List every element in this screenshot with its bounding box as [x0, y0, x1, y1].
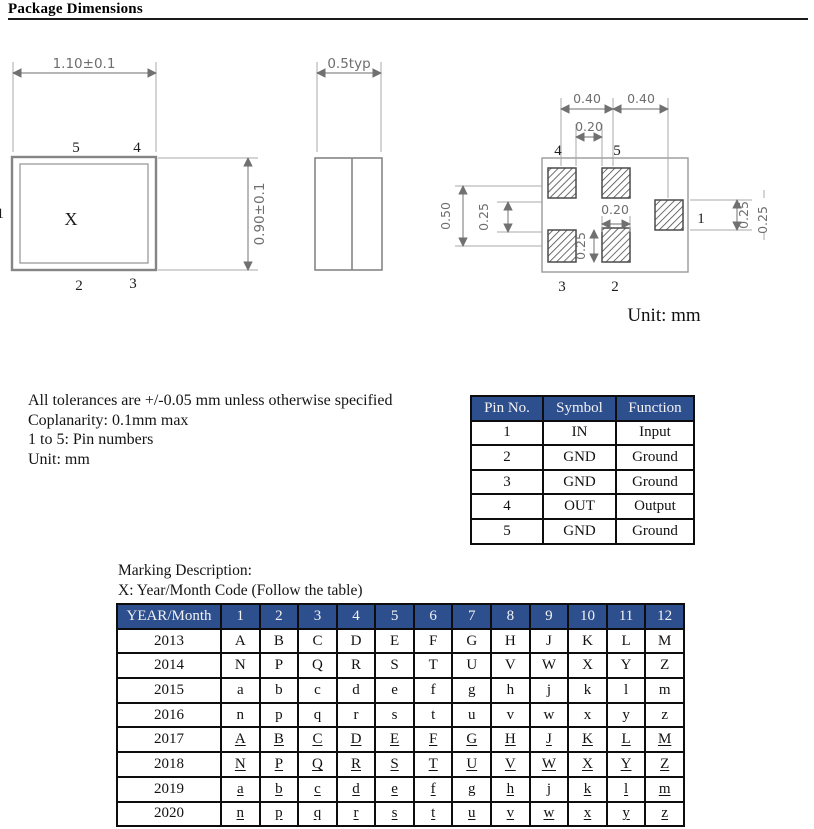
table-cell: R: [337, 752, 376, 777]
table-cell: B: [260, 727, 299, 752]
table-cell: x: [568, 703, 607, 728]
year-month-table: YEAR/Month123456789101112 2013ABCDEFGHJK…: [116, 603, 685, 827]
table-cell: t: [414, 703, 453, 728]
pin1-label: 1: [0, 206, 4, 222]
table-cell: A: [221, 727, 260, 752]
table-row: 5GNDGround: [471, 519, 694, 544]
table-cell: r: [337, 703, 376, 728]
table-cell: D: [337, 629, 376, 654]
table-cell: 2014: [117, 653, 221, 678]
pad-4: [548, 168, 576, 198]
table-cell: Z: [645, 653, 684, 678]
table-cell: V: [491, 653, 530, 678]
pad-1: [655, 200, 683, 230]
land-pin1-label: 1: [697, 211, 705, 227]
table-cell: y: [607, 802, 646, 827]
table-cell: 4: [471, 494, 543, 519]
table-cell: K: [568, 727, 607, 752]
table-cell: G: [452, 727, 491, 752]
pin-function-table: Pin No.SymbolFunction 1INInput2GNDGround…: [470, 395, 695, 545]
table-cell: Y: [607, 653, 646, 678]
land-pin4-label: 4: [554, 143, 562, 159]
year-table-header: YEAR/Month123456789101112: [117, 604, 684, 629]
table-cell: T: [414, 653, 453, 678]
table-cell: k: [568, 678, 607, 703]
column-header: YEAR/Month: [117, 604, 221, 629]
pad-3: [548, 230, 576, 262]
table-cell: K: [568, 629, 607, 654]
table-cell: Q: [298, 752, 337, 777]
table-cell: U: [452, 752, 491, 777]
pad-2: [602, 228, 630, 262]
note-line: All tolerances are +/-0.05 mm unless oth…: [28, 391, 392, 411]
table-cell: r: [337, 802, 376, 827]
table-cell: D: [337, 727, 376, 752]
table-cell: 3: [471, 470, 543, 495]
pin5-label: 5: [72, 140, 80, 156]
table-cell: 2013: [117, 629, 221, 654]
pin4-label: 4: [133, 140, 141, 156]
table-cell: s: [375, 802, 414, 827]
pin3-label: 3: [129, 276, 137, 292]
table-cell: u: [452, 802, 491, 827]
table-cell: G: [452, 629, 491, 654]
table-cell: 2018: [117, 752, 221, 777]
table-row: 2018NPQRSTUVWXYZ: [117, 752, 684, 777]
pin-table-body: 1INInput2GNDGround3GNDGround4OUTOutput5G…: [471, 421, 694, 544]
top-view-height-dim: 0.90±0.1: [252, 183, 268, 246]
table-cell: j: [530, 777, 569, 802]
table-row: 4OUTOutput: [471, 494, 694, 519]
column-header: 10: [568, 604, 607, 629]
table-cell: v: [491, 802, 530, 827]
table-cell: W: [530, 752, 569, 777]
column-header: 7: [452, 604, 491, 629]
table-cell: d: [337, 777, 376, 802]
table-cell: j: [530, 678, 569, 703]
table-cell: c: [298, 777, 337, 802]
table-cell: Y: [607, 752, 646, 777]
table-cell: Ground: [616, 445, 694, 470]
page-title: Package Dimensions: [8, 1, 143, 18]
land-pin5-label: 5: [613, 143, 621, 159]
title-underline: [8, 18, 808, 20]
table-row: 2019abcdefghjklm: [117, 777, 684, 802]
table-row: 2GNDGround: [471, 445, 694, 470]
table-cell: GND: [543, 470, 616, 495]
table-cell: M: [645, 629, 684, 654]
table-cell: a: [221, 777, 260, 802]
table-cell: F: [414, 727, 453, 752]
table-row: 2020npqrstuvwxyz: [117, 802, 684, 827]
side-view-thickness-dim: 0.5typ: [327, 56, 370, 72]
table-cell: E: [375, 727, 414, 752]
note-line: Unit: mm: [28, 450, 392, 470]
table-cell: l: [607, 678, 646, 703]
table-cell: Output: [616, 494, 694, 519]
table-row: 2016npqrstuvwxyz: [117, 703, 684, 728]
column-header: 2: [260, 604, 299, 629]
table-cell: k: [568, 777, 607, 802]
table-cell: S: [375, 752, 414, 777]
pin-table-header: Pin No.SymbolFunction: [471, 396, 694, 421]
table-cell: 5: [471, 519, 543, 544]
table-cell: Z: [645, 752, 684, 777]
note-line: Coplanarity: 0.1mm max: [28, 411, 392, 431]
table-cell: e: [375, 777, 414, 802]
dim-025-mid: 0.25: [573, 232, 588, 260]
table-cell: z: [645, 703, 684, 728]
table-cell: n: [221, 802, 260, 827]
table-cell: L: [607, 629, 646, 654]
table-cell: L: [607, 727, 646, 752]
table-cell: Q: [298, 653, 337, 678]
table-cell: 2: [471, 445, 543, 470]
column-header: 8: [491, 604, 530, 629]
table-cell: y: [607, 703, 646, 728]
table-cell: f: [414, 777, 453, 802]
table-cell: b: [260, 777, 299, 802]
note-line: 1 to 5: Pin numbers: [28, 430, 392, 450]
column-header: 1: [221, 604, 260, 629]
marking-line: X: Year/Month Code (Follow the table): [118, 581, 363, 601]
table-row: 3GNDGround: [471, 470, 694, 495]
package-drawings: 1.10±0.1 X 5 4 2 3 1 0.90±0.1 0.5typ: [0, 40, 814, 340]
table-cell: IN: [543, 421, 616, 446]
table-cell: F: [414, 629, 453, 654]
tolerance-notes: All tolerances are +/-0.05 mm unless oth…: [28, 391, 392, 469]
table-cell: GND: [543, 519, 616, 544]
table-cell: l: [607, 777, 646, 802]
table-cell: z: [645, 802, 684, 827]
table-cell: a: [221, 678, 260, 703]
table-cell: w: [530, 703, 569, 728]
column-header: 4: [337, 604, 376, 629]
table-cell: M: [645, 727, 684, 752]
table-cell: p: [260, 802, 299, 827]
table-row: 2014NPQRSTUVWXYZ: [117, 653, 684, 678]
table-cell: C: [298, 629, 337, 654]
column-header: Pin No.: [471, 396, 543, 421]
table-cell: u: [452, 703, 491, 728]
table-cell: J: [530, 629, 569, 654]
table-cell: E: [375, 629, 414, 654]
table-row: 2017ABCDEFGHJKLM: [117, 727, 684, 752]
pin2-label: 2: [75, 278, 83, 294]
table-row: 1INInput: [471, 421, 694, 446]
datasheet-page: Package Dimensions 1.10±0.1 X 5 4 2 3: [0, 0, 814, 829]
table-cell: c: [298, 678, 337, 703]
table-cell: A: [221, 629, 260, 654]
table-cell: X: [568, 752, 607, 777]
dim-025-left: 0.25: [476, 203, 491, 231]
table-cell: x: [568, 802, 607, 827]
marking-x: X: [65, 209, 78, 229]
table-cell: 1: [471, 421, 543, 446]
column-header: 5: [375, 604, 414, 629]
pad-5: [602, 168, 630, 198]
year-table-body: 2013ABCDEFGHJKLM2014NPQRSTUVWXYZ2015abcd…: [117, 629, 684, 827]
dim-020-top: 0.20: [575, 119, 603, 134]
table-cell: n: [221, 703, 260, 728]
column-header: 12: [645, 604, 684, 629]
table-cell: Input: [616, 421, 694, 446]
column-header: 9: [530, 604, 569, 629]
table-cell: H: [491, 629, 530, 654]
column-header: 6: [414, 604, 453, 629]
dim-050-left: 0.50: [438, 202, 453, 230]
table-cell: p: [260, 703, 299, 728]
dim-040-right: 0.40: [627, 91, 655, 106]
table-cell: g: [452, 777, 491, 802]
unit-label: Unit: mm: [627, 305, 701, 326]
table-cell: t: [414, 802, 453, 827]
package-inner-outline: [20, 164, 148, 263]
table-cell: q: [298, 802, 337, 827]
table-cell: N: [221, 653, 260, 678]
table-cell: Ground: [616, 519, 694, 544]
dim-020-mid: 0.20: [601, 202, 629, 217]
dim-025-right-outer: 0.25: [755, 206, 770, 234]
side-view-outline: [315, 158, 382, 270]
table-cell: g: [452, 678, 491, 703]
column-header: Symbol: [543, 396, 616, 421]
table-cell: R: [337, 653, 376, 678]
table-cell: s: [375, 703, 414, 728]
table-row: 2015abcdefghjklm: [117, 678, 684, 703]
column-header: 3: [298, 604, 337, 629]
table-cell: w: [530, 802, 569, 827]
table-cell: 2020: [117, 802, 221, 827]
table-cell: U: [452, 653, 491, 678]
table-cell: T: [414, 752, 453, 777]
marking-line: Marking Description:: [118, 561, 363, 581]
table-cell: B: [260, 629, 299, 654]
table-cell: H: [491, 727, 530, 752]
table-cell: W: [530, 653, 569, 678]
table-cell: 2015: [117, 678, 221, 703]
table-cell: q: [298, 703, 337, 728]
table-cell: N: [221, 752, 260, 777]
table-cell: Ground: [616, 470, 694, 495]
table-cell: h: [491, 678, 530, 703]
table-row: 2013ABCDEFGHJKLM: [117, 629, 684, 654]
dim-025-right-inner: 0.25: [736, 201, 751, 229]
table-cell: 2016: [117, 703, 221, 728]
table-cell: C: [298, 727, 337, 752]
table-cell: h: [491, 777, 530, 802]
dim-040-left: 0.40: [573, 91, 601, 106]
table-cell: P: [260, 752, 299, 777]
marking-description: Marking Description: X: Year/Month Code …: [118, 561, 363, 600]
land-pin3-label: 3: [558, 279, 566, 295]
table-cell: f: [414, 678, 453, 703]
table-cell: e: [375, 678, 414, 703]
land-pin2-label: 2: [611, 279, 619, 295]
top-view-width-dim: 1.10±0.1: [53, 56, 116, 72]
table-cell: X: [568, 653, 607, 678]
land-pattern-drawing: 0.40 0.40 0.20 4 5 0.50 0.25 0.20 0.: [438, 91, 770, 326]
table-cell: OUT: [543, 494, 616, 519]
table-cell: S: [375, 653, 414, 678]
table-cell: V: [491, 752, 530, 777]
table-cell: b: [260, 678, 299, 703]
table-cell: m: [645, 678, 684, 703]
side-view-drawing: 0.5typ: [315, 56, 382, 270]
table-cell: P: [260, 653, 299, 678]
column-header: 11: [607, 604, 646, 629]
top-view-drawing: 1.10±0.1 X 5 4 2 3 1 0.90±0.1: [0, 56, 268, 294]
table-cell: J: [530, 727, 569, 752]
table-cell: v: [491, 703, 530, 728]
column-header: Function: [616, 396, 694, 421]
table-cell: d: [337, 678, 376, 703]
table-cell: m: [645, 777, 684, 802]
table-cell: 2017: [117, 727, 221, 752]
table-cell: GND: [543, 445, 616, 470]
table-cell: 2019: [117, 777, 221, 802]
package-outline: [12, 157, 156, 270]
